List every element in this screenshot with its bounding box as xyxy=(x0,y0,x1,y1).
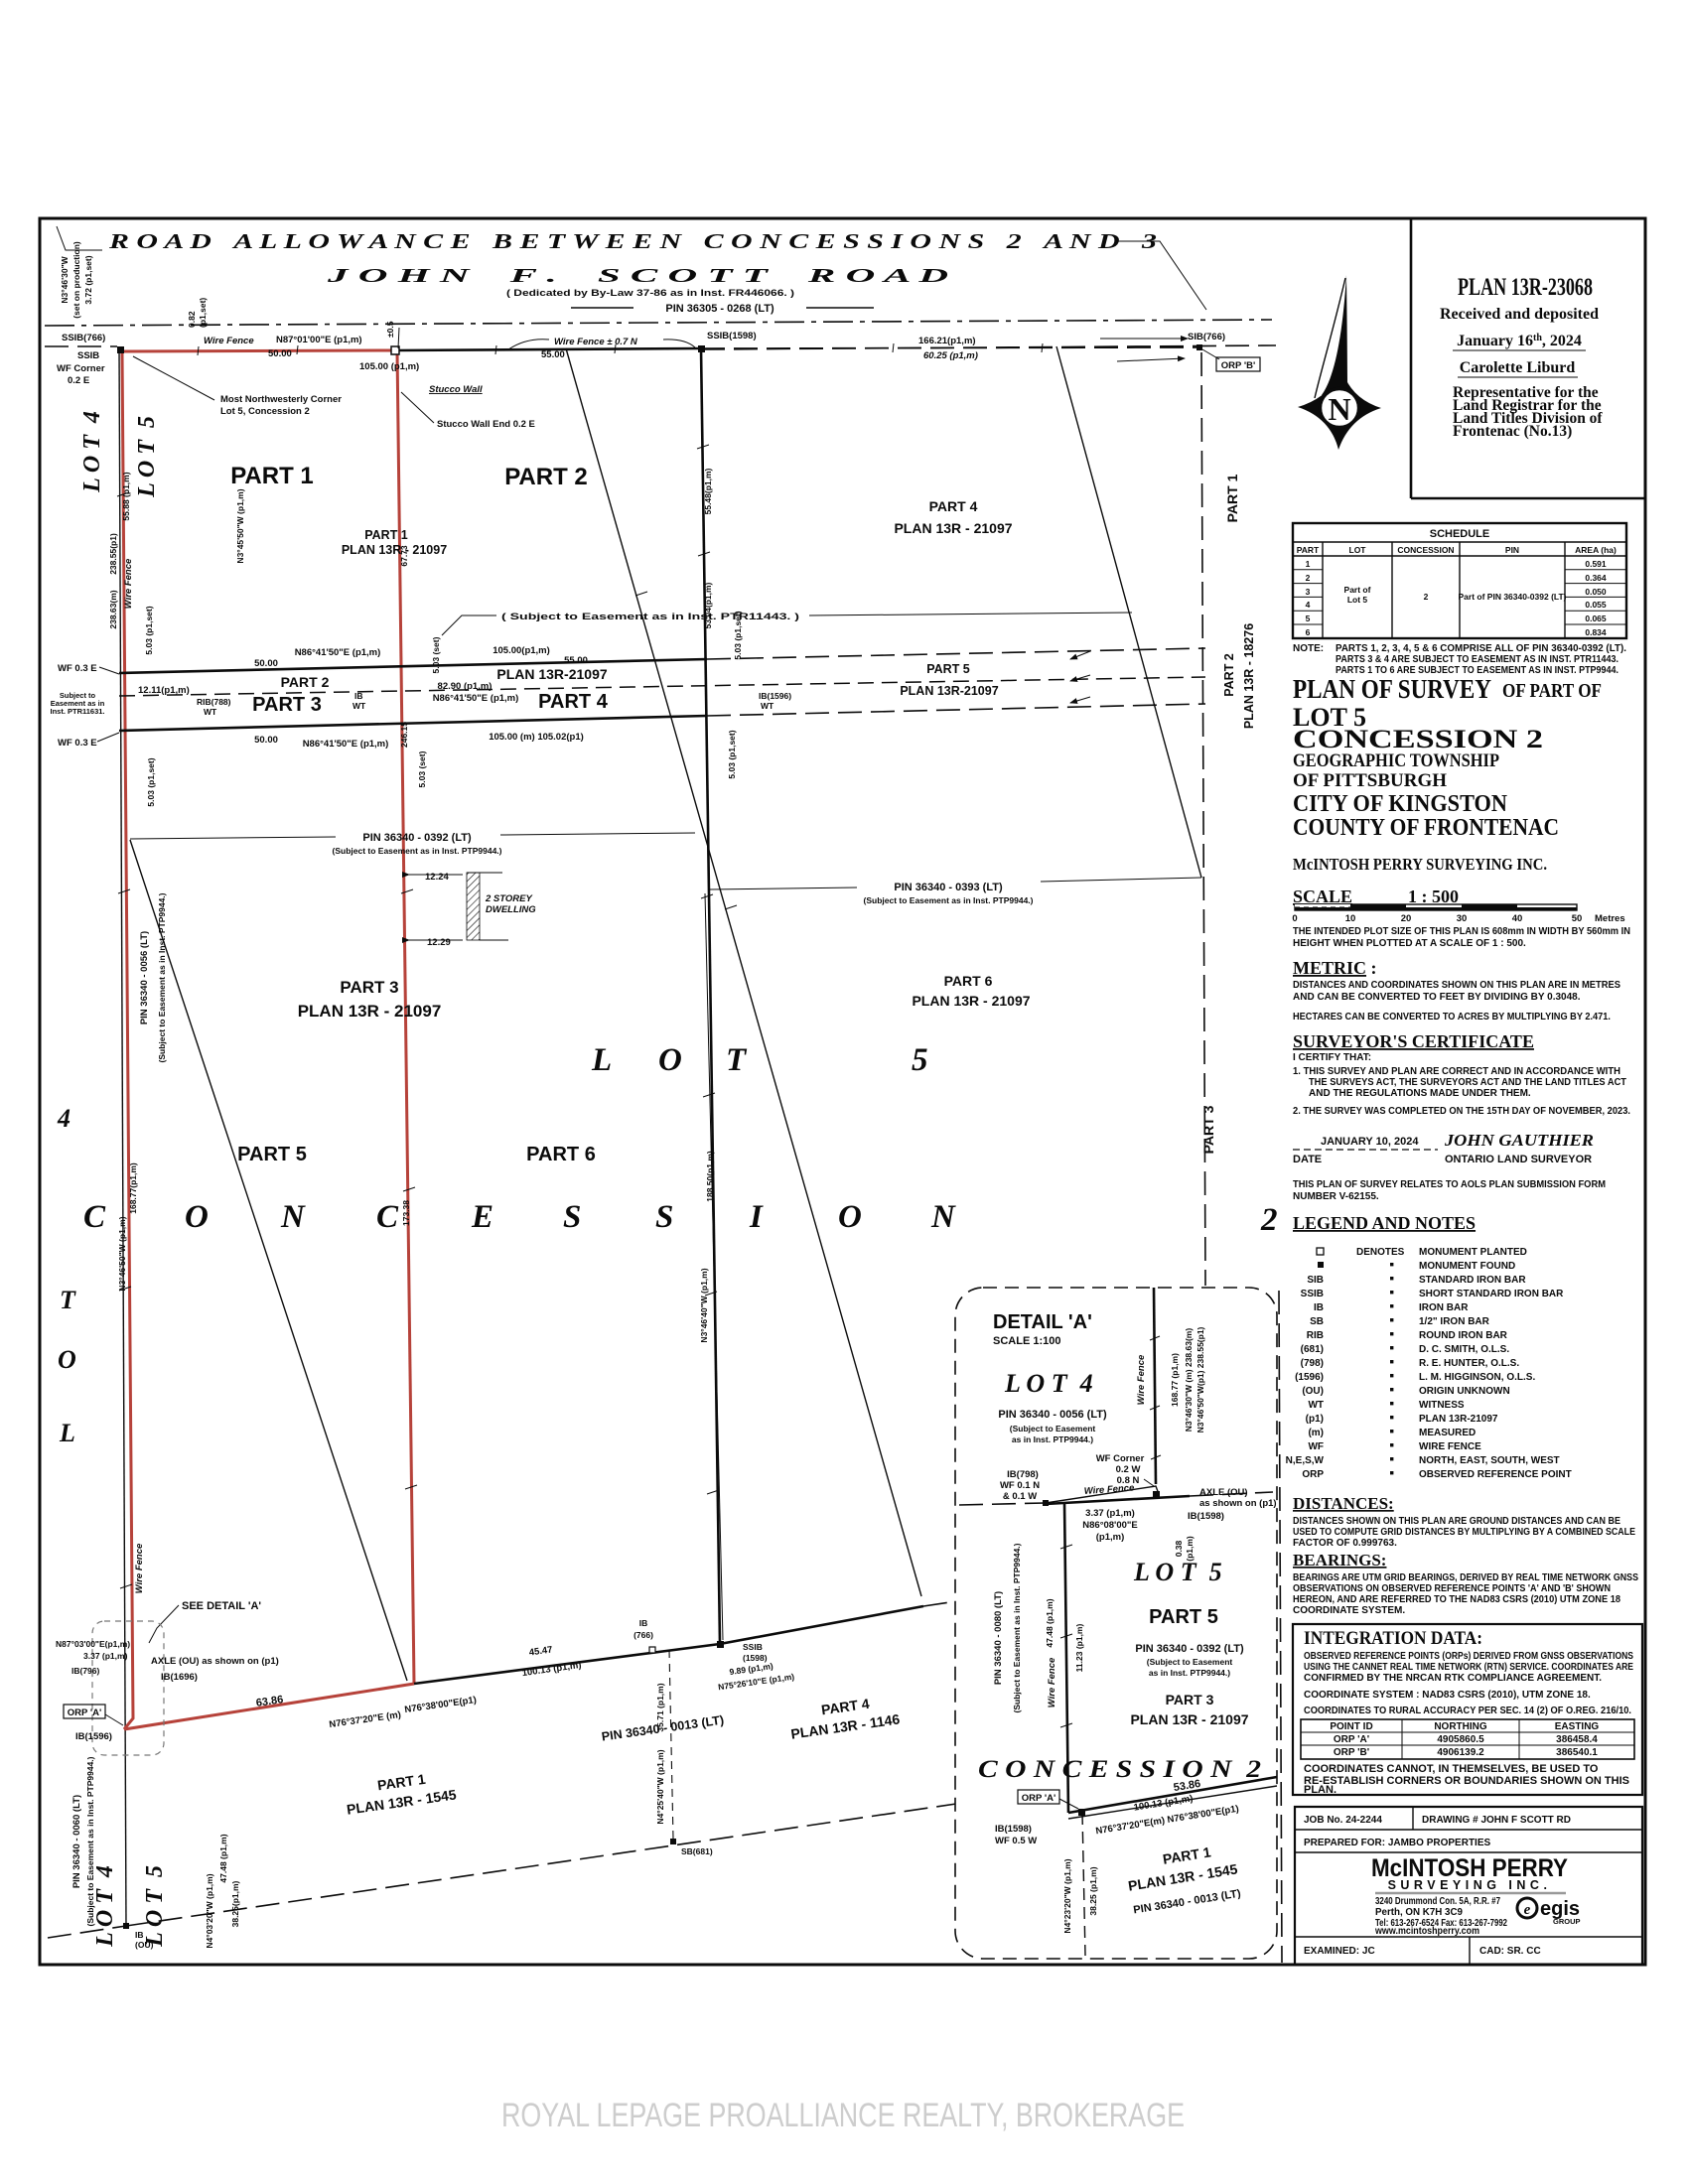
svg-text:40: 40 xyxy=(1512,913,1523,924)
svg-text:GROUP: GROUP xyxy=(1553,1917,1581,1926)
svg-text:WIRE FENCE: WIRE FENCE xyxy=(1419,1441,1481,1452)
svg-text:WITNESS: WITNESS xyxy=(1419,1400,1465,1411)
svg-text:METRIC :: METRIC : xyxy=(1293,958,1377,978)
svg-text:DATE: DATE xyxy=(1293,1154,1322,1165)
svg-text:COORDINATES TO RURAL ACCURACY: COORDINATES TO RURAL ACCURACY PER SEC. 1… xyxy=(1304,1706,1631,1716)
svg-text:35.71 (p1,m): 35.71 (p1,m) xyxy=(655,1683,665,1731)
svg-text:THE INTENDED PLOT SIZE OF THIS: THE INTENDED PLOT SIZE OF THIS PLAN IS 6… xyxy=(1293,926,1630,937)
svg-text:PART 5: PART 5 xyxy=(237,1144,307,1165)
svg-text:55.48(p1,m): 55.48(p1,m) xyxy=(703,468,713,514)
svg-text:IB: IB xyxy=(639,1618,648,1628)
svg-text:67.73: 67.73 xyxy=(399,545,409,567)
svg-text:ORP 'B': ORP 'B' xyxy=(1221,360,1255,371)
svg-text:188.50(p1,m): 188.50(p1,m) xyxy=(705,1151,715,1202)
svg-text:IB(1596): IB(1596) xyxy=(759,691,791,701)
svg-text:L O T 5: L O T 5 xyxy=(142,1865,168,1948)
svg-text:JOB No. 24-2244: JOB No. 24-2244 xyxy=(1304,1815,1382,1826)
svg-text:N: N xyxy=(1328,391,1350,427)
svg-text:N4°25'40"W (p1,m): N4°25'40"W (p1,m) xyxy=(655,1749,665,1824)
svg-text:47.48 (p1,m): 47.48 (p1,m) xyxy=(1045,1598,1055,1647)
svg-text:USING THE CANNET REAL TIME NET: USING THE CANNET REAL TIME NETWORK (RTN)… xyxy=(1304,1662,1633,1673)
svg-text:PARTS 1, 2, 3, 4, 5 & 6 COMPRI: PARTS 1, 2, 3, 4, 5 & 6 COMPRISE ALL OF … xyxy=(1336,643,1626,654)
svg-text:as shown on (p1): as shown on (p1) xyxy=(1199,1498,1277,1509)
svg-text:(Subject to Easement as in Ins: (Subject to Easement as in Inst. PTP9944… xyxy=(333,846,502,856)
svg-text:ROUND IRON BAR: ROUND IRON BAR xyxy=(1419,1330,1508,1341)
svg-text:L: L xyxy=(591,1042,612,1078)
svg-text:D. C. SMITH, O.L.S.: D. C. SMITH, O.L.S. xyxy=(1419,1344,1509,1355)
svg-text:53.04(p1,m): 53.04(p1,m) xyxy=(703,582,713,628)
svg-text:N3°46'50"W (p1,m): N3°46'50"W (p1,m) xyxy=(117,1216,127,1291)
svg-text:SCALE 1:100: SCALE 1:100 xyxy=(993,1335,1060,1347)
svg-text:OBSERVED REFERENCE POINT: OBSERVED REFERENCE POINT xyxy=(1419,1469,1572,1480)
svg-text:105.00 (m) 105.02(p1): 105.00 (m) 105.02(p1) xyxy=(489,732,584,743)
svg-text:BEARINGS:: BEARINGS: xyxy=(1293,1551,1386,1570)
svg-text:SSIB: SSIB xyxy=(743,1642,763,1652)
svg-text:PART 3: PART 3 xyxy=(1166,1692,1214,1707)
svg-text:50.00: 50.00 xyxy=(268,348,292,359)
svg-text:ORP 'A': ORP 'A' xyxy=(1334,1734,1369,1745)
svg-text:4: 4 xyxy=(1306,600,1311,610)
svg-text:C: C xyxy=(376,1199,399,1235)
svg-text:WF: WF xyxy=(1308,1441,1324,1452)
svg-text:Frontenac (No.13): Frontenac (No.13) xyxy=(1453,423,1572,440)
svg-text:(OU): (OU) xyxy=(1302,1386,1324,1397)
svg-text:N,E,S,W: N,E,S,W xyxy=(1286,1455,1325,1466)
svg-text:2: 2 xyxy=(1306,573,1311,583)
svg-text:WF Corner: WF Corner xyxy=(1096,1453,1145,1464)
svg-text:HEIGHT WHEN PLOTTED AT A SCALE: HEIGHT WHEN PLOTTED AT A SCALE OF 1 : 50… xyxy=(1293,938,1526,949)
svg-text:11.23 (p1,m): 11.23 (p1,m) xyxy=(1074,1624,1084,1673)
svg-text:Carolette Liburd: Carolette Liburd xyxy=(1460,359,1576,376)
svg-text:N86°08'00"E: N86°08'00"E xyxy=(1082,1520,1137,1531)
svg-text:COORDINATES CANNOT, IN THEMSEL: COORDINATES CANNOT, IN THEMSELVES, BE US… xyxy=(1304,1763,1599,1775)
svg-text:2. THE SURVEY WAS COMPLETED O: 2. THE SURVEY WAS COMPLETED ON THE 15TH … xyxy=(1293,1106,1630,1117)
svg-text:3.72 (p1,set): 3.72 (p1,set) xyxy=(83,255,93,304)
svg-text:2 STOREY: 2 STOREY xyxy=(485,893,533,904)
svg-text:WF 0.3 E: WF 0.3 E xyxy=(58,663,97,674)
svg-text:0.38: 0.38 xyxy=(1174,1540,1184,1557)
svg-text:Wire Fence: Wire Fence xyxy=(204,336,254,346)
svg-text:1/2" IRON BAR: 1/2" IRON BAR xyxy=(1419,1316,1490,1327)
svg-text:Lot 5, Concession 2: Lot 5, Concession 2 xyxy=(220,406,310,417)
svg-text:50: 50 xyxy=(1572,913,1583,924)
svg-text:CONFIRMED BY THE NRCAN RTK COM: CONFIRMED BY THE NRCAN RTK COMPLIANCE AG… xyxy=(1304,1673,1602,1684)
svg-text:as in Inst. PTP9944.): as in Inst. PTP9944.) xyxy=(1149,1668,1230,1678)
svg-text:as in Inst. PTP9944.): as in Inst. PTP9944.) xyxy=(1012,1434,1093,1444)
svg-text:McINTOSH PERRY SURVEYING INC.: McINTOSH PERRY SURVEYING INC. xyxy=(1293,855,1547,874)
svg-text:PART 1: PART 1 xyxy=(230,463,314,489)
svg-text:GEOGRAPHIC TOWNSHIP: GEOGRAPHIC TOWNSHIP xyxy=(1293,751,1499,771)
svg-text:173.38: 173.38 xyxy=(401,1200,411,1226)
svg-text:Wire Fence: Wire Fence xyxy=(1047,1657,1057,1707)
svg-text:PLAN 13R-23068: PLAN 13R-23068 xyxy=(1458,274,1593,301)
svg-text:PIN 36340 - 0056 (LT): PIN 36340 - 0056 (LT) xyxy=(139,931,150,1024)
svg-text:S: S xyxy=(563,1199,581,1235)
svg-text:12.11(p1,m): 12.11(p1,m) xyxy=(138,685,190,696)
svg-text:Perth, ON K7H 3C9: Perth, ON K7H 3C9 xyxy=(1375,1907,1463,1918)
svg-text:IB: IB xyxy=(1314,1302,1324,1313)
svg-text:238.55(p1): 238.55(p1) xyxy=(108,533,118,575)
svg-text:(OU): (OU) xyxy=(135,1940,154,1950)
svg-text:COORDINATE SYSTEM : NAD83 CSRS: COORDINATE SYSTEM : NAD83 CSRS (2010), U… xyxy=(1304,1690,1591,1701)
svg-text:THE SURVEYS ACT, THE SURVEYORS: THE SURVEYS ACT, THE SURVEYORS ACT AND T… xyxy=(1309,1077,1626,1088)
svg-text:55.00: 55.00 xyxy=(541,349,565,360)
svg-text:1. THIS SURVEY AND PLAN ARE C: 1. THIS SURVEY AND PLAN ARE CORRECT AND … xyxy=(1293,1066,1620,1077)
svg-text:DENOTES: DENOTES xyxy=(1356,1247,1405,1258)
svg-text:PIN 36340 - 0393 (LT): PIN 36340 - 0393 (LT) xyxy=(894,882,1003,893)
svg-text:ORP 'B': ORP 'B' xyxy=(1334,1747,1369,1758)
svg-text:WT: WT xyxy=(1308,1400,1324,1411)
svg-text:ROYAL LEPAGE PROALLIANCE REALT: ROYAL LEPAGE PROALLIANCE REALTY, BROKERA… xyxy=(501,2097,1185,2134)
svg-text:IB(1596): IB(1596) xyxy=(75,1731,112,1742)
svg-text:0.050: 0.050 xyxy=(1585,587,1607,597)
svg-text:0.591: 0.591 xyxy=(1585,559,1607,569)
svg-text:( Subject to Easement as: ( Subject to Easement as in Inst. PTR114… xyxy=(501,612,799,622)
svg-text:3.37 (p1,m): 3.37 (p1,m) xyxy=(83,1651,128,1661)
svg-text:4905860.5: 4905860.5 xyxy=(1437,1734,1484,1745)
svg-text:ORIGIN UNKNOWN: ORIGIN UNKNOWN xyxy=(1419,1386,1510,1397)
svg-text:HEREON, AND ARE REFERRED TO TH: HEREON, AND ARE REFERRED TO THE NAD83 CS… xyxy=(1293,1594,1620,1605)
svg-text:O: O xyxy=(658,1042,682,1078)
svg-text:(1596): (1596) xyxy=(1295,1372,1324,1383)
svg-text:CONCESSION 2: CONCESSION 2 xyxy=(1293,725,1543,753)
svg-text:T: T xyxy=(726,1042,748,1078)
svg-text:386540.1: 386540.1 xyxy=(1556,1747,1598,1758)
svg-text:(Subject to Easement: (Subject to Easement xyxy=(1010,1424,1096,1433)
svg-text:3.37 (p1,m): 3.37 (p1,m) xyxy=(1085,1508,1135,1519)
svg-text:(p1): (p1) xyxy=(1306,1414,1324,1425)
svg-text:AND THE REGULATIONS MADE UNDER: AND THE REGULATIONS MADE UNDER THEM. xyxy=(1309,1088,1531,1099)
svg-text:PART 4: PART 4 xyxy=(929,498,978,514)
svg-text:Wire Fence: Wire Fence xyxy=(134,1543,145,1593)
svg-text:1: 1 xyxy=(1306,559,1311,569)
svg-text:I CERTIFY THAT:: I CERTIFY THAT: xyxy=(1293,1052,1371,1063)
svg-text:N3°46'40"W (p1,m): N3°46'40"W (p1,m) xyxy=(699,1268,709,1342)
svg-text:LOT: LOT xyxy=(1349,545,1367,555)
svg-text:CITY OF KINGSTON: CITY OF KINGSTON xyxy=(1293,791,1508,817)
svg-text:(p1,m): (p1,m) xyxy=(1096,1532,1125,1543)
svg-text:AXLE (OU): AXLE (OU) xyxy=(1199,1487,1248,1498)
svg-text:IB(798): IB(798) xyxy=(1007,1469,1039,1480)
svg-text:ONTARIO LAND SURVEYOR: ONTARIO LAND SURVEYOR xyxy=(1445,1154,1592,1165)
svg-text:4: 4 xyxy=(57,1104,70,1133)
svg-text:60.25 (p1,m): 60.25 (p1,m) xyxy=(923,350,978,361)
svg-text:PART 6: PART 6 xyxy=(944,973,993,989)
svg-text:(Subject to Easement as in Ins: (Subject to Easement as in Inst. PTP9944… xyxy=(1012,1543,1022,1712)
svg-text:WT: WT xyxy=(204,707,217,717)
svg-text:SSIB(1598): SSIB(1598) xyxy=(707,331,757,341)
svg-text:SSIB: SSIB xyxy=(77,350,99,361)
svg-text:4906139.2: 4906139.2 xyxy=(1437,1747,1484,1758)
svg-text:JOHN GAUTHIER: JOHN GAUTHIER xyxy=(1444,1131,1594,1150)
svg-text:PREPARED FOR: JAMBO PROPERTIES: PREPARED FOR: JAMBO PROPERTIES xyxy=(1304,1838,1490,1848)
svg-text:55.88 (p1,m): 55.88 (p1,m) xyxy=(121,472,131,520)
svg-text:2: 2 xyxy=(1424,592,1429,602)
svg-text:PLAN 13R - 21097: PLAN 13R - 21097 xyxy=(298,1002,442,1021)
svg-text:5.03 (p1,set): 5.03 (p1,set) xyxy=(144,606,154,654)
svg-text:OF PART OF: OF PART OF xyxy=(1502,680,1602,702)
svg-text:IB(1598): IB(1598) xyxy=(1188,1511,1224,1522)
svg-text:R O A D A L L O W A N C E: R O A D A L L O W A N C E B E T W E E N … xyxy=(108,229,1158,253)
svg-text:0.2 W: 0.2 W xyxy=(1116,1464,1141,1475)
svg-text:JANUARY 10, 2024: JANUARY 10, 2024 xyxy=(1321,1136,1419,1148)
svg-text:AXLE (OU) as shown on (p1): AXLE (OU) as shown on (p1) xyxy=(151,1656,279,1667)
svg-text:STANDARD IRON BAR: STANDARD IRON BAR xyxy=(1419,1275,1526,1286)
svg-text:I: I xyxy=(749,1199,764,1235)
svg-text:0.2 E: 0.2 E xyxy=(68,375,89,386)
svg-text:SSIB(766): SSIB(766) xyxy=(62,333,105,343)
svg-text:50.00: 50.00 xyxy=(254,735,278,746)
svg-text:IRON BAR: IRON BAR xyxy=(1419,1302,1469,1313)
svg-text:E: E xyxy=(471,1199,493,1235)
svg-text:PART 5: PART 5 xyxy=(926,662,970,676)
svg-text:0.82: 0.82 xyxy=(187,311,197,328)
svg-text:BEARINGS ARE UTM GRID BEARINGS: BEARINGS ARE UTM GRID BEARINGS, DERIVED … xyxy=(1293,1572,1638,1583)
svg-text:DISTANCES AND COORDINATES SHOW: DISTANCES AND COORDINATES SHOWN ON THIS … xyxy=(1293,980,1620,991)
svg-text:L O T 4: L O T 4 xyxy=(79,411,105,493)
svg-text:L O T 4: L O T 4 xyxy=(1004,1369,1093,1398)
svg-text:PART 3: PART 3 xyxy=(252,694,322,716)
svg-text:NORTHING: NORTHING xyxy=(1434,1721,1487,1732)
svg-text:5.03 (p1,set): 5.03 (p1,set) xyxy=(733,611,743,659)
svg-text:N3°46'50"W(p1) 238.55(p1): N3°46'50"W(p1) 238.55(p1) xyxy=(1196,1326,1205,1433)
svg-text:0.055: 0.055 xyxy=(1585,600,1607,610)
svg-text:SIB(766): SIB(766) xyxy=(1188,332,1225,342)
svg-text:IB: IB xyxy=(135,1930,144,1940)
svg-text:WF 0.5 W: WF 0.5 W xyxy=(995,1836,1037,1846)
svg-text:(m): (m) xyxy=(1308,1428,1324,1438)
svg-text:PART 3: PART 3 xyxy=(1200,1105,1216,1154)
svg-text:3: 3 xyxy=(1306,587,1311,597)
svg-text:THIS PLAN OF SURVEY RELATES TO: THIS PLAN OF SURVEY RELATES TO AOLS PLAN… xyxy=(1293,1179,1606,1190)
svg-text:(p1,set): (p1,set) xyxy=(198,298,208,328)
svg-text:FACTOR OF 0.999763.: FACTOR OF 0.999763. xyxy=(1293,1538,1397,1549)
svg-text:CAD: SR. CC: CAD: SR. CC xyxy=(1479,1946,1541,1957)
svg-text:ORP: ORP xyxy=(1302,1469,1324,1480)
svg-text:PLAN OF SURVEY: PLAN OF SURVEY xyxy=(1293,674,1491,704)
svg-text:±0.5: ±0.5 xyxy=(385,321,395,338)
svg-text:N86°41'50"E (p1,m): N86°41'50"E (p1,m) xyxy=(295,647,381,658)
svg-text:1 : 500: 1 : 500 xyxy=(1408,887,1459,906)
svg-text:EASTING: EASTING xyxy=(1555,1721,1600,1732)
svg-text:PART 1: PART 1 xyxy=(364,528,408,542)
svg-text:5.03 (set): 5.03 (set) xyxy=(417,751,427,787)
svg-text:OF PITTSBURGH: OF PITTSBURGH xyxy=(1293,770,1447,791)
svg-text:C O N C E S S I O N 2: C O N C E S S I O N 2 xyxy=(978,1756,1261,1783)
svg-text:0.834: 0.834 xyxy=(1585,627,1607,637)
svg-text:SCHEDULE: SCHEDULE xyxy=(1430,528,1490,540)
svg-text:& 0.1 W: & 0.1 W xyxy=(1003,1491,1037,1502)
svg-text:PIN 36340 - 0392 (LT): PIN 36340 - 0392 (LT) xyxy=(1135,1643,1244,1655)
svg-text:(798): (798) xyxy=(1301,1358,1324,1369)
svg-text:PART 5: PART 5 xyxy=(1149,1606,1218,1628)
svg-text:SSIB: SSIB xyxy=(1301,1289,1324,1299)
svg-text:0.065: 0.065 xyxy=(1585,614,1607,623)
svg-text:SIB: SIB xyxy=(1307,1275,1324,1286)
svg-text:Inst. PTR11631.: Inst. PTR11631. xyxy=(50,707,104,716)
svg-text:WT: WT xyxy=(352,701,366,711)
svg-text:38.25(p1,m): 38.25(p1,m) xyxy=(230,1880,240,1927)
svg-text:5.03 (p1,set): 5.03 (p1,set) xyxy=(727,730,737,778)
svg-text:55.00: 55.00 xyxy=(564,655,588,666)
svg-text:6: 6 xyxy=(1306,627,1311,637)
svg-text:N: N xyxy=(280,1199,306,1235)
svg-text:PLAN 13R-21097: PLAN 13R-21097 xyxy=(496,666,607,682)
svg-text:PIN 36305 - 0268 (LT): PIN 36305 - 0268 (LT) xyxy=(665,303,774,315)
svg-text:SURVEYING INC.: SURVEYING INC. xyxy=(1388,1878,1552,1892)
svg-text:INTEGRATION DATA:: INTEGRATION DATA: xyxy=(1304,1628,1482,1649)
svg-text:RE-ESTABLISH CORNERS OR BOUNDA: RE-ESTABLISH CORNERS OR BOUNDARIES SHOWN… xyxy=(1304,1775,1629,1787)
svg-text:PLAN 13R - 21097: PLAN 13R - 21097 xyxy=(912,993,1030,1009)
svg-text:38.25 (p1,m): 38.25 (p1,m) xyxy=(1088,1866,1098,1915)
svg-text:PIN 36340 - 0060 (LT): PIN 36340 - 0060 (LT) xyxy=(71,1795,82,1888)
svg-text:N3°46'30"W (m) 238.63(m): N3°46'30"W (m) 238.63(m) xyxy=(1184,1328,1194,1433)
svg-text:O: O xyxy=(58,1345,76,1374)
svg-text:( Dedicated by By-Law 37: ( Dedicated by By-Law 37-86 as in Inst. … xyxy=(506,288,794,299)
svg-text:MEASURED: MEASURED xyxy=(1419,1428,1476,1438)
svg-text:CONCESSION: CONCESSION xyxy=(1397,545,1454,555)
svg-text:168.77 (p1,m): 168.77 (p1,m) xyxy=(1170,1353,1180,1407)
svg-text:246.15: 246.15 xyxy=(399,722,409,748)
svg-text:ORP 'A': ORP 'A' xyxy=(1022,1793,1055,1804)
svg-text:(Subject to Easement: (Subject to Easement xyxy=(1147,1657,1233,1667)
svg-text:105.00(p1,m): 105.00(p1,m) xyxy=(492,645,550,656)
svg-text:Stucco Wall: Stucco Wall xyxy=(429,384,483,395)
svg-text:(set on production): (set on production) xyxy=(71,241,81,319)
svg-text:L O T 5: L O T 5 xyxy=(134,416,160,498)
svg-text:PART 4: PART 4 xyxy=(538,691,609,713)
svg-text:L O T 5: L O T 5 xyxy=(1133,1558,1222,1586)
svg-text:OBSERVED REFERENCE POINTS (ORP: OBSERVED REFERENCE POINTS (ORPs) DERIVED… xyxy=(1304,1651,1633,1662)
svg-text:DWELLING: DWELLING xyxy=(486,904,536,915)
svg-text:O: O xyxy=(185,1199,209,1235)
svg-text:T: T xyxy=(60,1286,76,1314)
svg-text:N: N xyxy=(930,1199,956,1235)
svg-text:PLAN 13R - 18276: PLAN 13R - 18276 xyxy=(1242,623,1256,729)
svg-text:DISTANCES:: DISTANCES: xyxy=(1293,1494,1394,1513)
svg-text:January 16th, 2024: January 16th, 2024 xyxy=(1457,333,1582,349)
svg-text:0: 0 xyxy=(1292,913,1297,924)
svg-text:OBSERVATIONS ON OBSERVED REFER: OBSERVATIONS ON OBSERVED REFERENCE POINT… xyxy=(1293,1583,1611,1594)
svg-text:MONUMENT PLANTED: MONUMENT PLANTED xyxy=(1419,1247,1527,1258)
svg-text:N86°41'50"E (p1,m): N86°41'50"E (p1,m) xyxy=(303,739,389,750)
svg-text:e: e xyxy=(1524,1902,1531,1918)
svg-text:Wire Fence: Wire Fence xyxy=(1136,1354,1147,1405)
svg-text:PLAN 13R-21097: PLAN 13R-21097 xyxy=(1419,1414,1498,1425)
svg-text:Part of: Part of xyxy=(1344,585,1371,595)
svg-text:168.77(p1,m): 168.77(p1,m) xyxy=(128,1162,138,1214)
svg-text:N4°03'20"W (p1,m): N4°03'20"W (p1,m) xyxy=(205,1873,214,1948)
svg-text:3240 Drummond Con. 5A, R.R. #7: 3240 Drummond Con. 5A, R.R. #7 xyxy=(1375,1896,1500,1907)
svg-text:C: C xyxy=(83,1199,106,1235)
svg-text:COUNTY OF FRONTENAC: COUNTY OF FRONTENAC xyxy=(1293,815,1559,841)
svg-text:LEGEND AND NOTES: LEGEND AND NOTES xyxy=(1293,1213,1476,1233)
svg-text:POINT ID: POINT ID xyxy=(1330,1721,1372,1732)
svg-text:AND CAN BE CONVERTED TO FEET B: AND CAN BE CONVERTED TO FEET BY DIVIDING… xyxy=(1293,992,1581,1003)
svg-text:IB(1696): IB(1696) xyxy=(161,1672,198,1683)
svg-text:Wire Fence ± 0.7 N: Wire Fence ± 0.7 N xyxy=(554,337,638,347)
svg-text:PART 3: PART 3 xyxy=(340,978,398,997)
svg-text:0.364: 0.364 xyxy=(1585,573,1607,583)
svg-text:N86°41'50"E (p1,m): N86°41'50"E (p1,m) xyxy=(433,693,519,704)
svg-text:NUMBER V-62155.: NUMBER V-62155. xyxy=(1293,1191,1379,1202)
svg-text:PART 2: PART 2 xyxy=(281,674,330,690)
svg-text:Part of PIN 36340-0392 (LT): Part of PIN 36340-0392 (LT) xyxy=(1459,592,1567,602)
svg-text:5.03 (p1,set): 5.03 (p1,set) xyxy=(146,757,156,806)
svg-text:(Subject to Easement as in Ins: (Subject to Easement as in Inst. PTP9944… xyxy=(864,895,1034,905)
svg-text:(766): (766) xyxy=(633,1630,653,1640)
svg-text:PART 6: PART 6 xyxy=(526,1144,596,1165)
svg-text:DRAWING # JOHN F SCOTT RD: DRAWING # JOHN F SCOTT RD xyxy=(1422,1815,1571,1826)
svg-text:12.24: 12.24 xyxy=(425,872,449,883)
svg-text:2: 2 xyxy=(1260,1202,1278,1238)
svg-text:NOTE:: NOTE: xyxy=(1293,643,1324,654)
svg-text:IB(1598): IB(1598) xyxy=(995,1824,1032,1835)
svg-text:COORDINATE SYSTEM.: COORDINATE SYSTEM. xyxy=(1293,1605,1405,1616)
svg-text:PART 1: PART 1 xyxy=(1224,474,1240,522)
svg-text:WT: WT xyxy=(761,701,774,711)
svg-text:30: 30 xyxy=(1457,913,1468,924)
svg-text:PARTS 3 & 4 ARE SUBJECT TO EAS: PARTS 3 & 4 ARE SUBJECT TO EASEMENT AS I… xyxy=(1336,654,1618,665)
svg-text:SB(681): SB(681) xyxy=(681,1846,713,1856)
svg-text:SCALE: SCALE xyxy=(1293,887,1352,906)
svg-text:PART 2: PART 2 xyxy=(504,464,588,490)
svg-text:AREA (ha): AREA (ha) xyxy=(1575,545,1617,555)
svg-text:L: L xyxy=(59,1419,75,1447)
svg-text:www.mcintoshperry.com: www.mcintoshperry.com xyxy=(1374,1926,1479,1937)
svg-text:PART 2: PART 2 xyxy=(1222,653,1236,697)
svg-text:Received and deposited: Received and deposited xyxy=(1440,306,1599,323)
svg-text:PLAN 13R - 21097: PLAN 13R - 21097 xyxy=(1130,1711,1248,1727)
svg-text:IB(796): IB(796) xyxy=(71,1666,100,1676)
svg-text:82.90 (p1,m): 82.90 (p1,m) xyxy=(438,681,492,692)
svg-text:N3°46'30"W: N3°46'30"W xyxy=(60,255,70,303)
svg-text:238.63(m): 238.63(m) xyxy=(108,590,118,628)
svg-text:Stucco Wall End 0.2 E: Stucco Wall End 0.2 E xyxy=(437,419,535,430)
svg-text:SB: SB xyxy=(1310,1316,1324,1327)
svg-text:(Subject to Easement as in Ins: (Subject to Easement as in Inst. PTP9944… xyxy=(157,892,167,1062)
svg-text:20: 20 xyxy=(1401,913,1412,924)
svg-text:10: 10 xyxy=(1345,913,1356,924)
svg-text:(681): (681) xyxy=(1301,1344,1324,1355)
svg-text:HECTARES CAN BE CONVERTED TO A: HECTARES CAN BE CONVERTED TO ACRES BY MU… xyxy=(1293,1012,1611,1023)
svg-text:386458.4: 386458.4 xyxy=(1556,1734,1598,1745)
svg-text:PIN 36340 - 0392 (LT): PIN 36340 - 0392 (LT) xyxy=(362,832,472,844)
svg-text:RIB(788): RIB(788) xyxy=(197,697,231,707)
svg-text:PLAN.: PLAN. xyxy=(1304,1784,1336,1796)
svg-text:PLAN 13R - 21097: PLAN 13R - 21097 xyxy=(342,543,447,557)
svg-text:WF Corner: WF Corner xyxy=(57,363,105,374)
svg-text:NORTH, EAST, SOUTH, WEST: NORTH, EAST, SOUTH, WEST xyxy=(1419,1455,1560,1466)
svg-text:47.48 (p1,m): 47.48 (p1,m) xyxy=(218,1834,228,1882)
svg-text:EXAMINED: JC: EXAMINED: JC xyxy=(1304,1946,1375,1957)
svg-text:5.03 (set): 5.03 (set) xyxy=(431,636,441,673)
svg-text:N87°03'00"E(p1,m): N87°03'00"E(p1,m) xyxy=(56,1639,130,1649)
svg-text:PLAN 13R-21097: PLAN 13R-21097 xyxy=(900,684,998,698)
svg-text:IB: IB xyxy=(354,691,363,701)
svg-text:DETAIL 'A': DETAIL 'A' xyxy=(993,1311,1092,1333)
svg-text:USED TO COMPUTE GRID DISTANCES: USED TO COMPUTE GRID DISTANCES BY MULTIP… xyxy=(1293,1527,1635,1538)
svg-text:5: 5 xyxy=(912,1042,928,1078)
svg-text:SHORT STANDARD IRON BAR: SHORT STANDARD IRON BAR xyxy=(1419,1289,1564,1299)
svg-text:Wire Fence: Wire Fence xyxy=(123,558,134,609)
svg-text:SEE DETAIL 'A': SEE DETAIL 'A' xyxy=(182,1600,261,1612)
svg-text:5: 5 xyxy=(1306,614,1311,623)
svg-text:L O T 4: L O T 4 xyxy=(92,1865,118,1948)
svg-text:SURVEYOR'S CERTIFICATE: SURVEYOR'S CERTIFICATE xyxy=(1293,1031,1534,1051)
svg-text:WF 0.1 N: WF 0.1 N xyxy=(1000,1480,1040,1491)
svg-text:R. E. HUNTER, O.L.S.: R. E. HUNTER, O.L.S. xyxy=(1419,1358,1519,1369)
